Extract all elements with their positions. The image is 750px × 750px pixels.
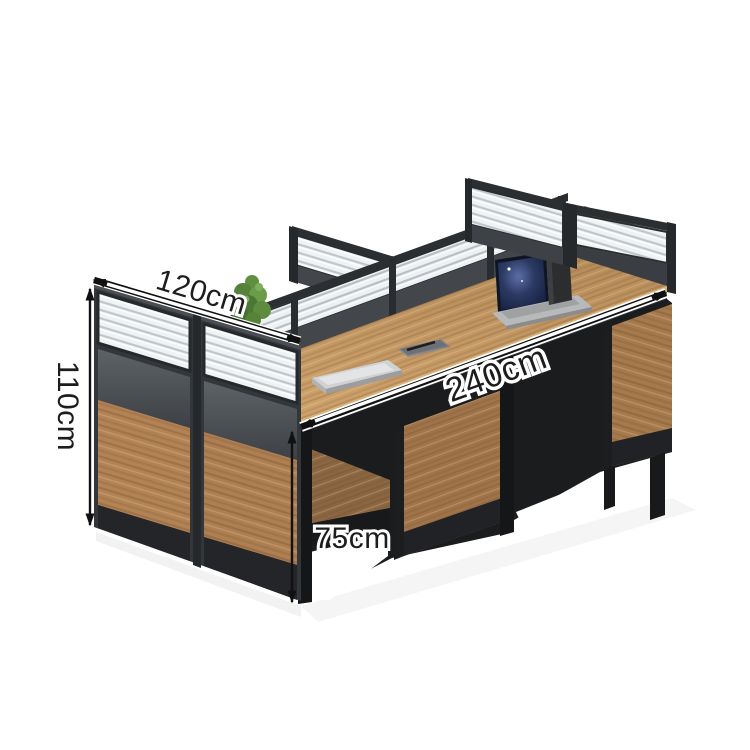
end-panel-1 xyxy=(98,292,190,561)
end-panel-2 xyxy=(204,324,297,600)
dim-label-height: 110cm xyxy=(51,361,84,451)
product-image-canvas: 120cm 110cm 240cm 75cm xyxy=(0,0,750,750)
workstation-illustration: 120cm 110cm 240cm 75cm xyxy=(0,0,750,750)
dim-height: 110cm xyxy=(51,289,90,525)
dim-label-desk-height: 75cm xyxy=(314,522,389,555)
